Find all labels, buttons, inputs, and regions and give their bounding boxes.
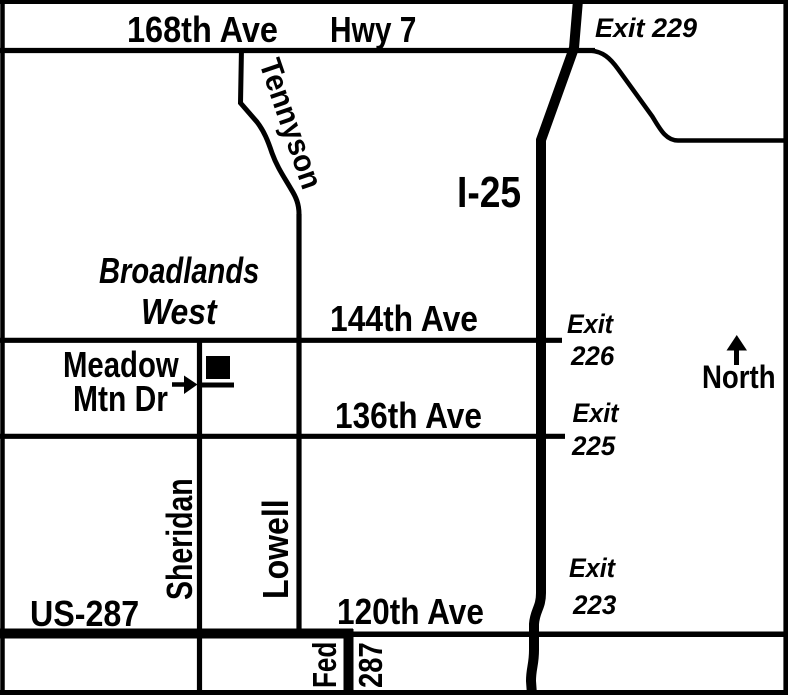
svg-text:Hwy 7: Hwy 7: [330, 10, 416, 50]
svg-text:287: 287: [354, 642, 390, 688]
svg-text:Lowell: Lowell: [256, 499, 296, 599]
svg-text:223: 223: [572, 590, 616, 621]
svg-text:120th Ave: 120th Ave: [337, 592, 484, 632]
svg-text:Exit 229: Exit 229: [595, 13, 697, 43]
svg-text:225: 225: [571, 431, 616, 462]
svg-text:Mtn Dr: Mtn Dr: [73, 379, 168, 419]
svg-text:136th Ave: 136th Ave: [335, 396, 482, 436]
svg-text:226: 226: [570, 341, 614, 372]
svg-text:US-287: US-287: [30, 594, 139, 634]
svg-text:Exit: Exit: [573, 397, 620, 428]
svg-text:Sheridan: Sheridan: [160, 478, 200, 600]
svg-text:Exit: Exit: [567, 308, 614, 339]
svg-text:I-25: I-25: [457, 167, 521, 217]
svg-text:Exit: Exit: [569, 552, 616, 583]
svg-text:Broadlands: Broadlands: [99, 250, 259, 291]
svg-text:West: West: [141, 292, 218, 332]
svg-text:144th Ave: 144th Ave: [330, 299, 478, 339]
svg-text:Fed: Fed: [307, 642, 344, 688]
svg-text:North: North: [702, 360, 776, 395]
svg-text:168th Ave: 168th Ave: [127, 10, 278, 50]
